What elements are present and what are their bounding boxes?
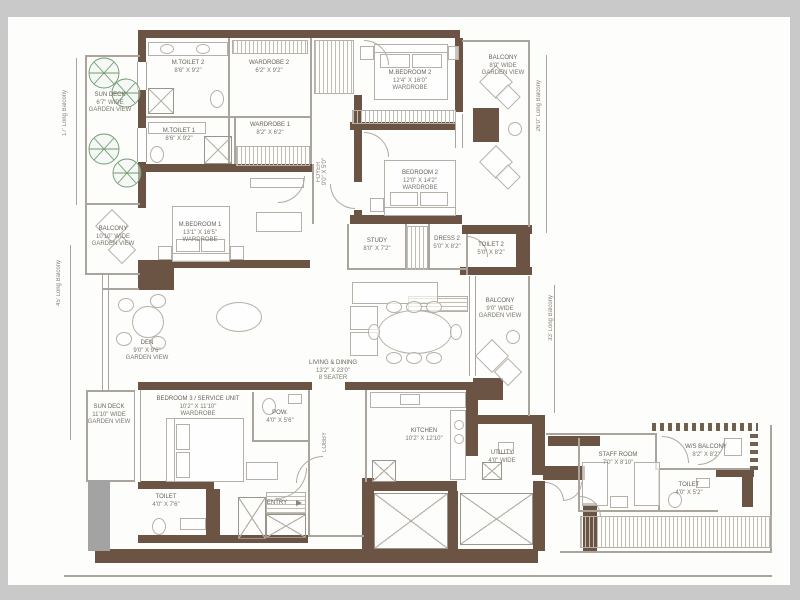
bench [256, 212, 302, 232]
side-table [610, 496, 628, 508]
dining-chair [426, 352, 442, 364]
nightstand [370, 198, 384, 212]
wc [150, 146, 164, 163]
wall [345, 382, 478, 390]
room-label-wardrobe-1: WARDROBE 18'2" X 6'2" [238, 122, 302, 137]
room-label-bedroom-3: BEDROOM 3 / SERVICE UNIT10'2" X 11'10"WA… [146, 396, 250, 419]
room-label-kitchen: KITCHEN10'2" X 12'10" [394, 428, 454, 443]
pillow [176, 452, 190, 478]
dimension-line [546, 55, 547, 233]
coffee-table [216, 302, 262, 332]
den-chair [150, 294, 166, 308]
room-label-study: STUDY8'0" X 7'2" [350, 238, 404, 253]
room-label-m-toilet-2: M.TOILET 28'6" X 9'2" [150, 60, 226, 75]
nightstand [448, 46, 459, 60]
den-chair [118, 298, 134, 312]
dim-label-left-top: 17' Long Balcony [62, 90, 68, 136]
wall [548, 436, 600, 446]
storage-unit [266, 514, 306, 538]
dining-chair [450, 324, 462, 340]
balcony-edge [85, 273, 140, 275]
wardrobe-unit [232, 40, 308, 54]
dim-label-right-top: 26'0" Long Balcony [536, 80, 542, 131]
partition-line [310, 38, 312, 164]
dining-table [378, 310, 452, 354]
side-table [506, 330, 520, 344]
wall [533, 481, 545, 551]
wall [206, 489, 220, 539]
staircase [580, 516, 772, 548]
pillow [390, 192, 418, 206]
partition-line [546, 433, 656, 435]
room-label-living-dining: LIVING & DINING13'2" X 23'0"8 SEATER [296, 360, 370, 383]
wall [460, 267, 532, 275]
dim-label-right-bottom: 33' Long Balcony [548, 295, 554, 341]
partition-line [252, 392, 254, 442]
room-label-m-toilet-1: M.TOILET 18'6" X 9'2" [148, 128, 210, 143]
dimension-line [554, 285, 555, 413]
trellis-edge [652, 423, 758, 431]
entry-arrow-icon [296, 500, 302, 506]
room-label-powder: POW.4'0" X 5'6" [258, 410, 302, 425]
room-label-wardrobe-2: WARDROBE 26'2" X 9'2" [232, 60, 306, 75]
partition-line [656, 468, 756, 470]
nightstand [230, 246, 244, 260]
pillow [420, 192, 448, 206]
hob-burner [454, 420, 464, 430]
wall [742, 477, 753, 507]
partition-line [347, 224, 349, 270]
wardrobe-unit [236, 146, 310, 166]
partition-line [660, 510, 718, 512]
room-label-dress-2: DRESS 25'0" X 8'2" [428, 236, 466, 251]
room-label-entry: ENTRY [260, 500, 294, 508]
wc [152, 518, 166, 535]
dining-chair [406, 352, 422, 364]
headboard [172, 253, 230, 262]
wall [365, 481, 457, 491]
wall [350, 215, 462, 224]
dining-chair [426, 301, 442, 313]
closet-shelves [314, 40, 354, 94]
partition-line [365, 390, 367, 482]
plot-line [64, 575, 772, 577]
sink [160, 44, 174, 54]
headboard [384, 207, 456, 216]
wall [473, 108, 499, 142]
balcony-edge [462, 40, 528, 42]
room-label-balcony-top-right: BALCONY8'0" WIDEGARDEN VIEW [478, 55, 528, 78]
wall [354, 130, 362, 182]
dim-label-left-bottom: 45' Long Balcony [56, 260, 62, 306]
sink [288, 394, 302, 404]
balcony-edge [528, 40, 530, 227]
wall [448, 491, 458, 550]
glazing-line [102, 275, 109, 391]
wardrobe-unit [352, 110, 456, 124]
partition-line [308, 535, 364, 537]
dining-chair [406, 301, 422, 313]
balcony-edge [85, 205, 87, 275]
kitchen-sink [400, 394, 420, 405]
dimension-line [76, 58, 77, 205]
wall [138, 382, 312, 390]
duct-shaft [406, 226, 428, 270]
dining-chair [368, 324, 380, 340]
room-label-m-bedroom-2: M.BEDROOM 212'4" X 16'0"WARDROBE [372, 70, 448, 93]
wall [95, 549, 538, 563]
wall [138, 30, 460, 38]
wc [210, 90, 224, 108]
room-label-lobby: LOBBY [322, 432, 328, 452]
service-shaft [88, 480, 110, 551]
wall [472, 415, 534, 424]
room-label-den: DEN9'0" X 9'6"GARDEN VIEW [118, 340, 176, 363]
headboard [166, 418, 175, 482]
partition-line [103, 288, 139, 290]
tree-icon [84, 53, 146, 205]
glazing-line [469, 276, 476, 376]
room-label-staff-room: STAFF ROOM7'0" X 8'10" [588, 452, 648, 467]
dresser [246, 462, 278, 480]
balcony-edge [86, 390, 136, 392]
shower [148, 88, 174, 114]
room-label-m-bedroom-1: M.BEDROOM 113'1" X 16'5"WARDROBE [162, 222, 238, 245]
plot-line [560, 551, 772, 553]
sink [196, 44, 210, 54]
partition-line [312, 164, 314, 224]
room-label-toilet-3: TOILET4'0" X 7'6" [144, 494, 188, 509]
floor-plan: SUN DECK6'7" WIDEGARDEN VIEW M.TOILET 28… [0, 0, 800, 600]
staff-bed [634, 462, 660, 506]
wall [138, 266, 174, 290]
pillow [176, 424, 190, 450]
room-label-sun-deck-top: SUN DECK6'7" WIDEGARDEN VIEW [82, 92, 138, 115]
dining-chair [386, 352, 402, 364]
trellis-edge [750, 430, 758, 470]
side-table [508, 122, 522, 136]
lift-shaft [460, 493, 533, 545]
pillow [412, 54, 442, 68]
room-label-sun-deck-bottom: SUN DECK11'10" WIDEGARDEN VIEW [82, 404, 136, 427]
refrigerator [372, 460, 396, 482]
partition-line [146, 116, 310, 118]
room-label-ws-balcony: W/S BALCONY8'2" X 8'2" [666, 444, 746, 459]
room-label-staff-toilet: TOILET4'0" X 5'2" [666, 482, 712, 497]
nightstand [158, 246, 172, 260]
room-label-balcony-left: BALCONY10'10" WIDEGARDEN VIEW [88, 226, 138, 249]
dimension-line [70, 245, 71, 440]
room-label-bedroom-2: BEDROOM 212'0" X 14'2"WARDROBE [382, 170, 458, 193]
dining-chair [386, 301, 402, 313]
hob-burner [454, 434, 464, 444]
wall [466, 390, 478, 456]
window [455, 114, 463, 148]
balcony-edge [528, 276, 530, 416]
den-table [132, 306, 164, 338]
wall [138, 481, 214, 489]
vanity-counter [180, 518, 206, 530]
room-label-foyer: FOYER9'0" X 5'0" [316, 158, 328, 185]
room-label-utility: UTILITY4'0" WIDE [482, 450, 522, 465]
room-label-toilet-2: TOILET 25'0" X 8'2" [468, 242, 514, 257]
lift-shaft [374, 493, 448, 549]
partition-line [252, 440, 308, 442]
room-label-balcony-right: BALCONY9'0" WIDEGARDEN VIEW [474, 298, 526, 321]
